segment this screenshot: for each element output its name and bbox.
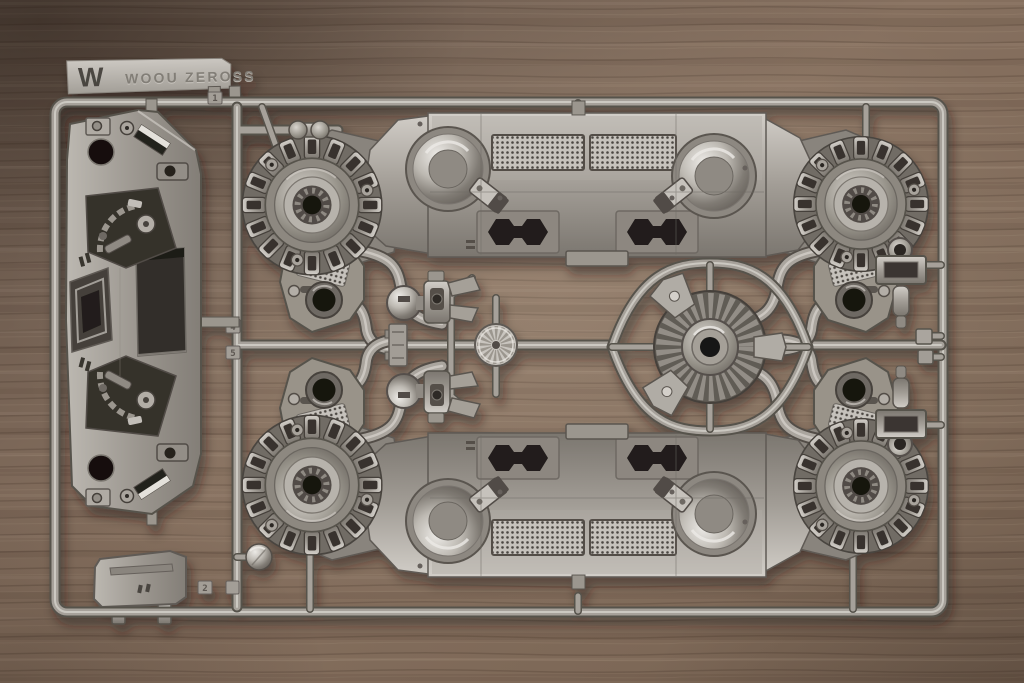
sphere-joint-part [246,544,272,570]
gate-number: 5 [230,349,235,359]
small-radial-fan-part [475,324,517,366]
tag-molded-text: WOOU ZEROSS [125,68,256,87]
turbine-fan-assembly [612,263,808,431]
pin-hole [88,455,114,481]
photo-canvas: W WOOU ZEROSS WOOU ZEROSS 1 4 5 2 [0,0,1024,683]
cylinder-coupler-part [289,121,329,139]
runner-letter: W [78,62,105,93]
photo-model-kit-sprue: W WOOU ZEROSS WOOU ZEROSS 1 4 5 2 [0,0,1024,683]
gate-number: 1 [212,94,217,104]
rect-recess [136,248,186,356]
pin-hole [88,139,114,165]
plate-on-runner-part [385,324,407,366]
gate-number: 2 [202,584,207,594]
